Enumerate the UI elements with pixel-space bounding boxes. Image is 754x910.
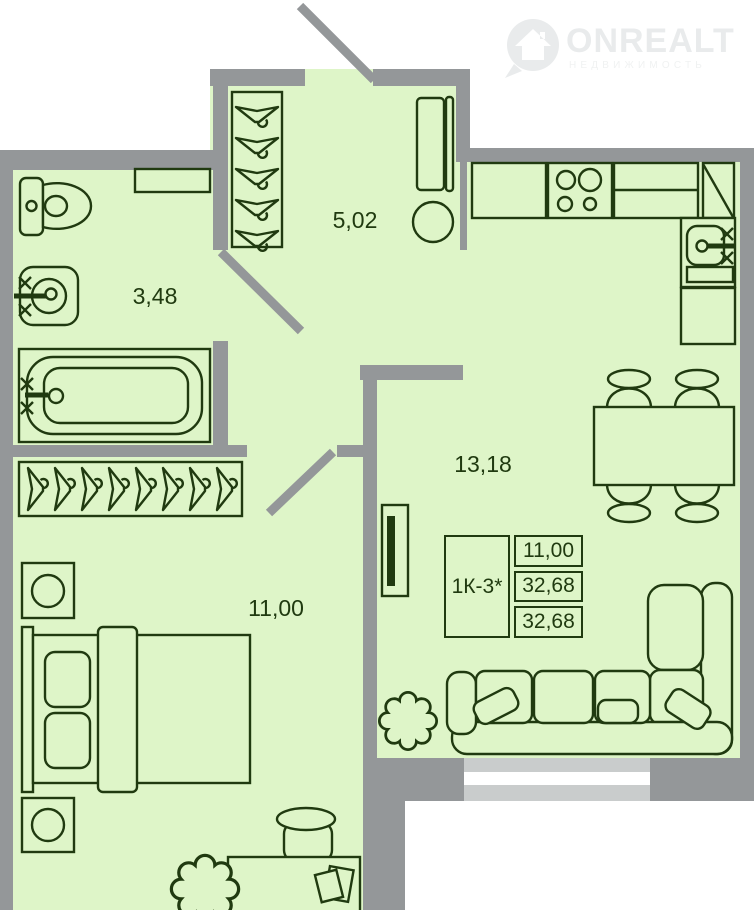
hall-pouf xyxy=(413,202,453,242)
stove xyxy=(548,163,612,218)
throw-pillow xyxy=(598,700,638,723)
hall-cabinet-side xyxy=(446,97,453,191)
wall-outer-left xyxy=(0,150,13,910)
wall-entry-right xyxy=(373,69,470,86)
wall-kitchen-top xyxy=(456,148,754,162)
wall-kitchen-hall xyxy=(460,162,467,250)
wall-bath-bedroom xyxy=(0,445,247,457)
wall-living-bottom-left xyxy=(363,758,465,801)
unit-total-area: 32,68 xyxy=(514,571,583,603)
toilet-button xyxy=(27,201,37,211)
wall-bath-hall-upper xyxy=(213,69,228,250)
window-glass xyxy=(464,772,650,785)
wall-lower-continuation xyxy=(363,800,405,910)
dining-table xyxy=(594,407,734,485)
sofa-chaise-cushion xyxy=(648,585,703,670)
room-label-bathroom: 3,48 xyxy=(105,283,205,310)
toilet-bowl-inner xyxy=(45,196,67,216)
unit-full-area: 32,68 xyxy=(514,606,583,638)
sofa-cushion xyxy=(534,671,593,723)
pillow xyxy=(45,652,90,707)
bathtub-basin xyxy=(44,368,188,423)
unit-living-area: 11,00 xyxy=(514,535,583,567)
wall-living-bottom-right xyxy=(649,758,754,801)
wall-outer-right xyxy=(740,148,754,801)
tv-screen xyxy=(387,516,395,586)
wall-bathroom-top xyxy=(0,150,228,170)
kitchen-counter xyxy=(472,163,546,218)
pillow xyxy=(45,713,90,768)
wall-bath-hall-lower xyxy=(213,341,228,445)
entry-door xyxy=(300,6,374,80)
washbasin-drain xyxy=(46,289,57,300)
wall-hall-living xyxy=(360,365,463,380)
room-label-hallway: 5,02 xyxy=(305,207,405,234)
plant xyxy=(379,692,436,749)
bed-blanket-fold xyxy=(98,627,137,792)
sofa-armrest xyxy=(447,672,476,734)
bed-headboard xyxy=(22,627,33,792)
kitchen-counter-3 xyxy=(681,288,735,344)
kitchen-sink-drain xyxy=(697,241,708,252)
floor-plan: ONREALT НЕДВИЖИМОСТЬ xyxy=(0,0,754,910)
unit-name: 1К-3* xyxy=(444,535,510,638)
desk-chair xyxy=(277,808,335,830)
hall-cabinet xyxy=(417,98,444,190)
bathtub-drain xyxy=(49,389,63,403)
bedroom-wardrobe xyxy=(19,462,242,516)
room-label-bedroom: 11,00 xyxy=(226,595,326,622)
wall-bedroom-living xyxy=(363,380,377,758)
sink-drawer xyxy=(687,267,733,282)
room-label-living: 13,18 xyxy=(433,451,533,478)
info-table: 1К-3* 11,00 32,68 32,68 xyxy=(444,535,583,638)
nightstand xyxy=(22,563,74,618)
nightstand xyxy=(22,798,74,852)
bathroom-shelf xyxy=(135,169,210,192)
